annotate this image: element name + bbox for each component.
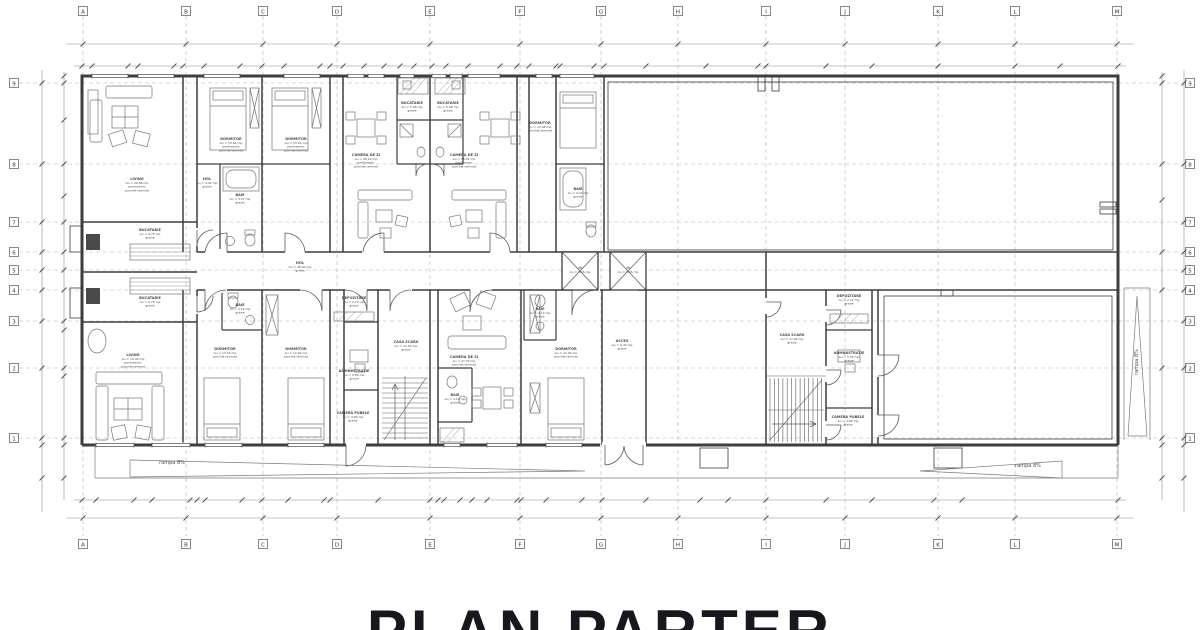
grid-row-label: 3: [1188, 319, 1192, 325]
annotations-layer: rampa 8%rampa 8%rampa 8%liftAu = 3.45 mp…: [159, 266, 1140, 469]
room-label: LIVINGAu = 19.34 mppardoseala:parchet la…: [121, 353, 146, 368]
room-label: BAIEAu = 4.10 mpgresie: [530, 307, 551, 319]
room-label: BAIEAu = 4.10 mpgresie: [445, 393, 466, 405]
floor-plan-drawing: LIVINGAu = 20.86 mppardoseala:parchet la…: [0, 0, 1200, 630]
grid-column-label: K: [936, 542, 940, 548]
grid-column-label: B: [184, 9, 188, 15]
grid-column-label: F: [518, 9, 521, 15]
grid-row-label: 9: [1188, 81, 1192, 87]
dining-set: [346, 112, 386, 144]
staircase: [382, 376, 428, 440]
room-label: DEPOZITAREAu = 2.72 mpgresie: [837, 294, 862, 306]
room-label: DORMITORAu = 12.44 mpparchet laminat: [554, 347, 579, 359]
grid-column-label: H: [676, 9, 680, 15]
staircase: [766, 376, 826, 442]
grid-column-label: M: [1115, 9, 1120, 15]
grid-column-label: H: [676, 542, 680, 548]
room-label: DEPOZITAREAu = 2.72 mpgresie: [342, 296, 367, 308]
sofa-group: [358, 190, 412, 238]
grid-row-label: 5: [1188, 268, 1192, 274]
room-label: BAIEAu = 4.19 mpgresie: [230, 303, 251, 315]
room-label: DORMITORAu = 13.34 mpparchet laminat: [213, 347, 238, 359]
grid-column-label: I: [765, 9, 767, 15]
room-label: BUCATARIEAu = 5.08 mpgresie: [437, 101, 459, 113]
ramp-label: rampa 8%: [159, 460, 185, 466]
grid-row-label: 8: [1188, 162, 1192, 168]
bed: [560, 92, 596, 148]
room-label: HOLAu = 4.42 mpgresie: [197, 177, 218, 189]
grid-column-label: D: [335, 542, 339, 548]
furniture-layer: [86, 78, 868, 442]
sofa-group: [449, 190, 506, 238]
ramp-label: rampa 8%: [1015, 463, 1041, 469]
grid-column-label: J: [843, 9, 846, 15]
grid-column-label: D: [335, 9, 339, 15]
grid-row-label: 8: [12, 162, 16, 168]
room-label: BUCATARIEAu = 9.75 mpgresie: [139, 296, 161, 308]
room-label: CAMERA PUBELEAu = 3.80 mpgresie: [337, 411, 370, 423]
room-label: CAMERA DE ZIAu = 27.75 mpparchet laminat: [450, 355, 478, 367]
grid-column-label: J: [843, 542, 846, 548]
ramp-label: rampa 8%: [1134, 349, 1140, 375]
room-label: CASA SCARIIAu = 12.52 mpgresie: [394, 340, 419, 352]
room-label: DORMITORAu = 13.62 mppardoseala:parchet …: [219, 137, 244, 152]
room-label: BAIEAu = 4.37 mpgresie: [230, 193, 251, 205]
grid-row-label: 4: [12, 288, 16, 294]
grid-column-label: E: [428, 542, 432, 548]
grid-row-label: 7: [1188, 220, 1192, 226]
grid-row-label: 3: [12, 319, 16, 325]
room-label: BUCATARIEAu = 9.75 mpgresie: [139, 228, 161, 240]
grid-column-label: I: [765, 542, 767, 548]
room-label: DORMITORAu = 12.98 mpparchet laminat: [528, 121, 553, 133]
grid-row-label: 4: [1188, 288, 1192, 294]
room-label: ACCESAu = 6.40 mpgresie: [612, 339, 633, 351]
grid-column-label: L: [1013, 9, 1017, 15]
grid-column-label: C: [261, 542, 265, 548]
room-label: CAMERA DE ZIAu = 26.22 mppardoseala:parc…: [352, 153, 380, 168]
grid-column-label: A: [81, 542, 85, 548]
room-label: BAIEAu = 4.37 mpgresie: [568, 187, 589, 199]
bed: [548, 378, 584, 440]
grid-column-label: F: [518, 542, 521, 548]
grid-column-label: M: [1115, 542, 1120, 548]
grid-row-label: 6: [1188, 250, 1192, 256]
grid-column-label: G: [599, 9, 603, 15]
room-label: DORMITORAu = 13.41 mppardoseala:parchet …: [284, 137, 309, 152]
grid-column-label: G: [599, 542, 603, 548]
grid-column-label: A: [81, 9, 85, 15]
grid-row-label: 2: [1188, 366, 1192, 372]
bed: [204, 378, 240, 440]
grid-row-label: 2: [12, 366, 16, 372]
bed: [288, 378, 324, 440]
grid-column-label: E: [428, 9, 432, 15]
room-label: LIVINGAu = 20.86 mppardoseala:parchet la…: [125, 177, 150, 192]
grid-lines-layer: [19, 16, 1185, 536]
room-label: HOLAu = 38.90 mpgresie: [289, 261, 312, 273]
dining-set: [480, 112, 520, 144]
grid-row-label: 9: [12, 81, 16, 87]
grid-column-label: K: [936, 9, 940, 15]
grid-column-label: B: [184, 542, 188, 548]
grid-row-label: 1: [12, 436, 16, 442]
plan-title: PLAN PARTER: [0, 597, 1200, 630]
drawing-sheet: LIVINGAu = 20.86 mppardoseala:parchet la…: [0, 0, 1200, 630]
grid-row-label: 6: [12, 250, 16, 256]
room-label: BUCATARIEAu = 5.08 mpgresie: [401, 101, 423, 113]
dining-set: [472, 387, 513, 409]
grid-column-label: C: [261, 9, 265, 15]
room-label: CASA SCARIIAu = 17.02 mpgresie: [780, 333, 805, 345]
room-label: CAMERA DE ZIAu = 26.22 mppardoseala:parc…: [450, 153, 478, 168]
grid-row-label: 7: [12, 220, 16, 226]
room-label: DORMITORAu = 12.60 mpparchet laminat: [284, 347, 309, 359]
grid-row-label: 5: [12, 268, 16, 274]
grid-row-label: 1: [1188, 436, 1192, 442]
grid-column-label: L: [1013, 542, 1017, 548]
ramp-left: [130, 460, 585, 477]
